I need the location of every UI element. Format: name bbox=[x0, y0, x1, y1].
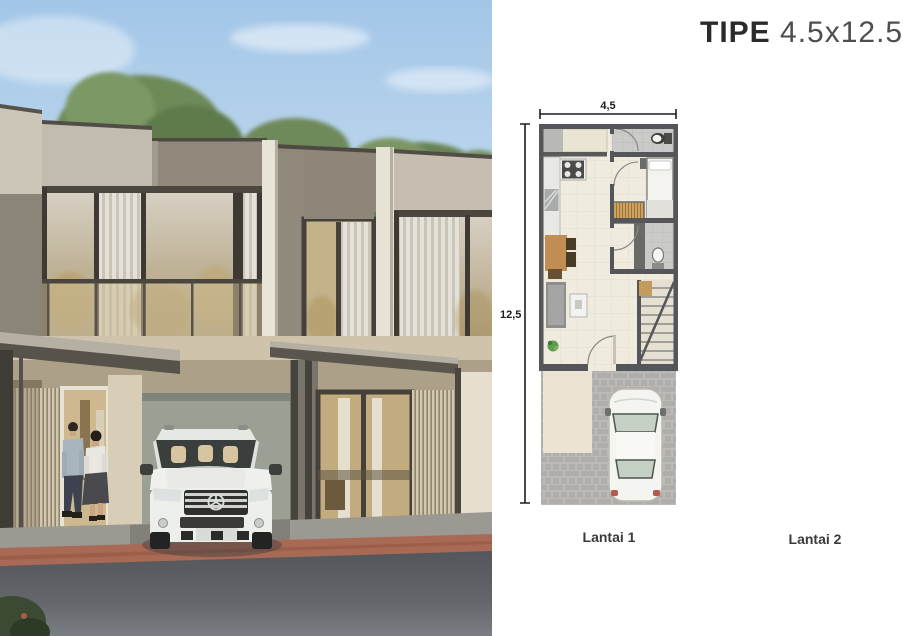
svg-text:12,5: 12,5 bbox=[500, 309, 521, 321]
svg-text:4,5: 4,5 bbox=[600, 100, 615, 112]
